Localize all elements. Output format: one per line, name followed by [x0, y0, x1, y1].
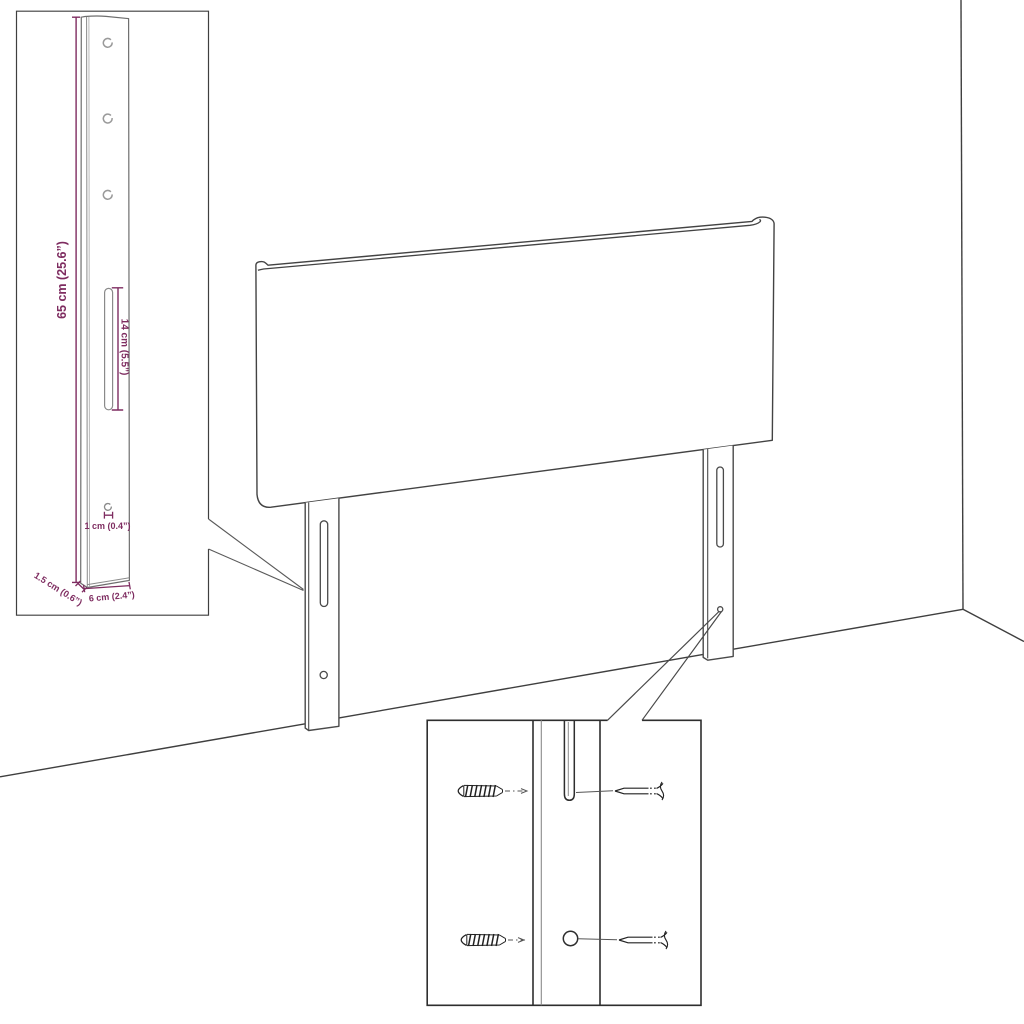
svg-text:65 cm (25.6”): 65 cm (25.6”) — [55, 241, 69, 319]
svg-text:14 cm (5.5”): 14 cm (5.5”) — [119, 319, 130, 376]
svg-text:1 cm (0.4”): 1 cm (0.4”) — [84, 521, 130, 531]
